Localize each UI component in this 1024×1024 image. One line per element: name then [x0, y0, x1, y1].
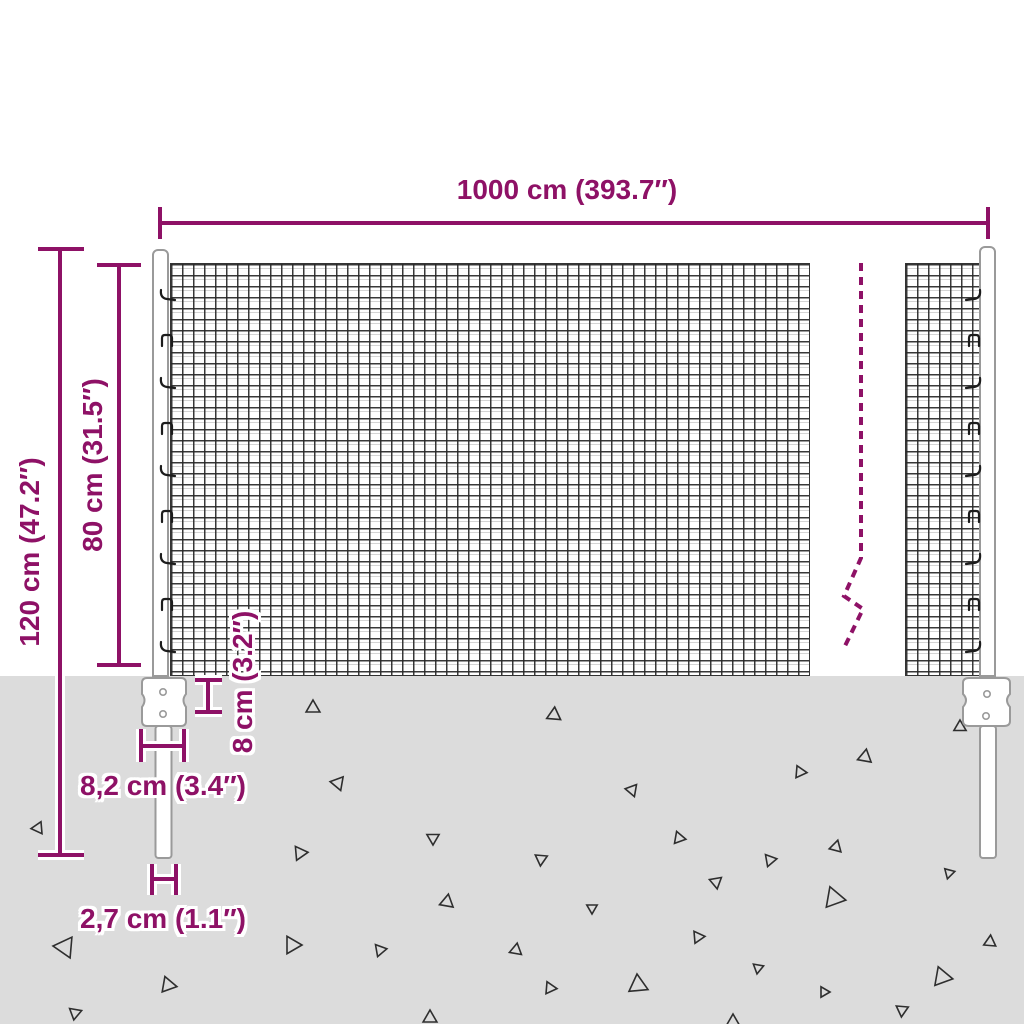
plate-height-dimension-label: 8 cm (3.2″)	[229, 611, 257, 754]
total-height-dimension-label: 120 cm (47.2″)	[16, 457, 44, 646]
mesh-panel-right	[905, 263, 984, 676]
fence-dimension-diagram: 1000 cm (393.7″) 120 cm (47.2″) 80 cm (3…	[0, 0, 1024, 1024]
post-width-dimension-label: 2,7 cm (1.1″)	[80, 905, 246, 933]
width-dimension-label: 1000 cm (393.7″)	[457, 176, 677, 204]
fence-post-right	[979, 246, 996, 677]
mesh-panel-left	[170, 263, 810, 676]
ground	[0, 676, 1024, 1024]
mesh-break-line	[844, 263, 863, 648]
mesh-height-dimension-label: 80 cm (31.5″)	[79, 378, 107, 552]
width-dimension-line	[160, 207, 988, 239]
plate-width-dimension-label: 8,2 cm (3.4″)	[80, 772, 246, 800]
fence-post-left	[152, 249, 169, 677]
